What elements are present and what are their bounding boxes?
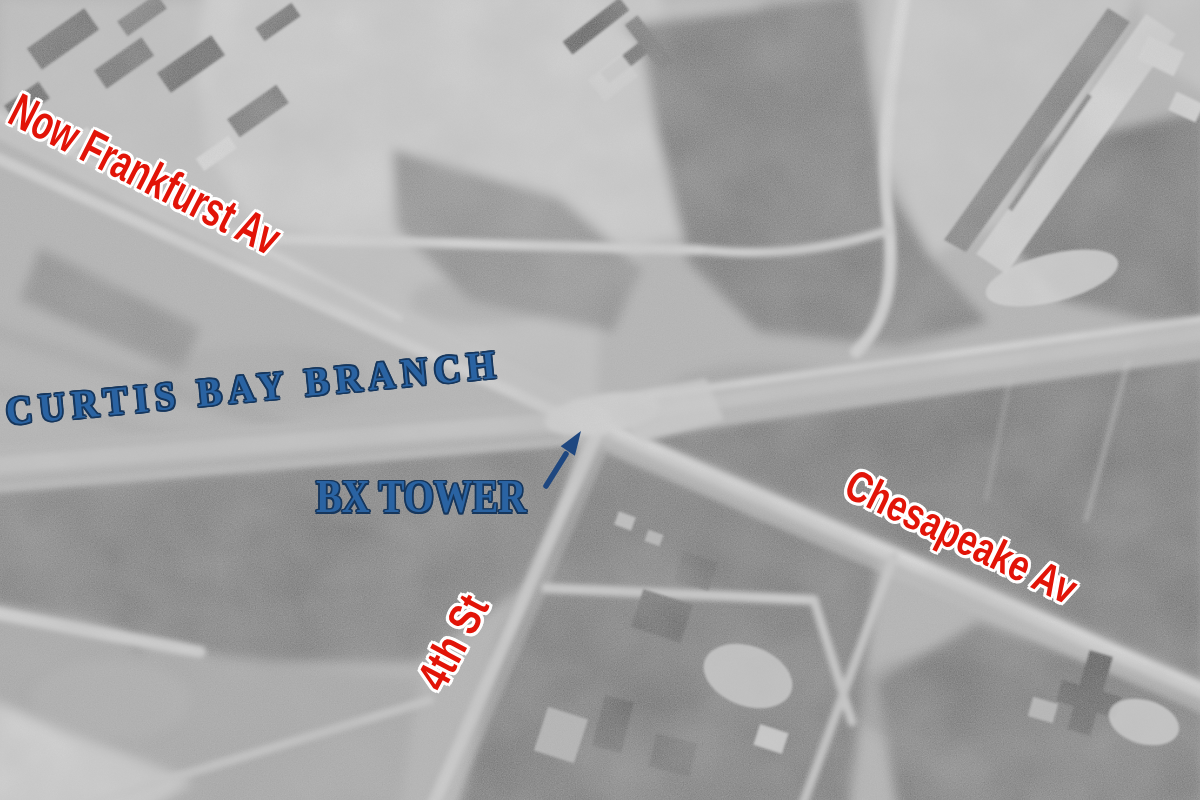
- photo-grain: [0, 0, 1200, 800]
- annotated-aerial-photo: Now Frankfurst Av CURTIS BAY BRANCH BX T…: [0, 0, 1200, 800]
- aerial-photo-background: [0, 0, 1200, 800]
